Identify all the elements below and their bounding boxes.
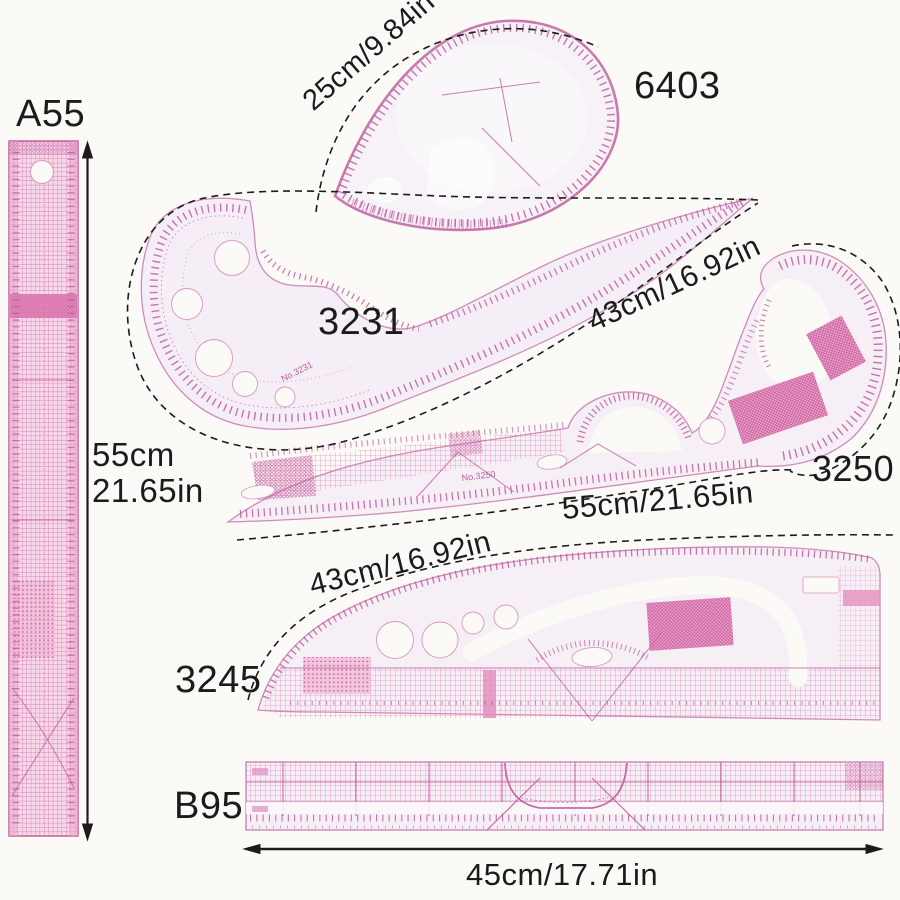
arrow-left-icon (244, 845, 260, 854)
ruler-3231-hole-2 (172, 289, 203, 320)
product-image-ruler-set: No.3231 No.3250 (0, 0, 900, 900)
ruler-3245-hole-1 (377, 622, 414, 659)
ruler-3245-hole-4 (494, 605, 518, 629)
label-a55-code: A55 (16, 94, 85, 135)
ruler-3245-window (803, 577, 839, 593)
ruler-6403-emboss-2 (427, 140, 493, 210)
arrow-up-icon (83, 142, 93, 158)
label-a55-size-cm: 55cm (92, 437, 204, 473)
ruler-3231-hole-1 (215, 241, 250, 276)
ruler-3245-stripe-right (843, 590, 880, 606)
ruler-a55-grid (9, 141, 78, 836)
label-a55-size-in: 21.65in (92, 473, 204, 509)
ruler-a55-dot-block-dots (13, 580, 55, 658)
ruler-3231-hole-3 (196, 340, 233, 377)
label-3245-code: 3245 (175, 660, 262, 701)
arrow-right-icon (866, 845, 882, 854)
ruler-3250-grid-dense-mid (448, 430, 483, 457)
label-6403-code: 6403 (634, 66, 721, 107)
ruler-6403-emboss-1 (368, 177, 402, 203)
ruler-a55-right-band (69, 141, 78, 836)
ruler-3231-hole-5 (275, 387, 295, 407)
ruler-3231: No.3231 (141, 198, 753, 429)
ruler-3245-grid-right (838, 566, 880, 668)
ruler-a55-left-band (9, 141, 18, 836)
ruler-b95-tag-2 (252, 806, 268, 812)
label-3231-code: 3231 (318, 302, 405, 343)
ruler-a55-hole (31, 161, 54, 184)
ruler-3245-dot-patch (303, 657, 371, 694)
ruler-b95-tag-1 (252, 768, 268, 775)
ruler-3245-stripe-mid (483, 670, 496, 718)
label-3250-code: 3250 (812, 450, 894, 489)
dimension-arrow-b95 (244, 845, 882, 854)
ruler-3245-hole-2 (422, 622, 458, 658)
ruler-3245-hatch-patch (646, 597, 733, 651)
ruler-a55-dark-band-hatch (10, 294, 77, 318)
label-a55-size: 55cm 21.65in (92, 437, 204, 508)
ruler-3231-body (141, 198, 753, 429)
arrow-down-icon (83, 824, 93, 840)
ruler-3245-hole-3 (462, 612, 484, 634)
label-b95-code: B95 (174, 786, 243, 827)
label-b95-size: 45cm/17.71in (466, 858, 658, 891)
dimension-arrow-a55 (83, 142, 93, 840)
ruler-3231-hole-4 (233, 372, 258, 397)
ruler-a55 (9, 141, 78, 836)
ruler-b95-dense-block (845, 763, 883, 790)
ruler-b95 (246, 762, 883, 830)
ruler-3250-hole (699, 418, 725, 444)
